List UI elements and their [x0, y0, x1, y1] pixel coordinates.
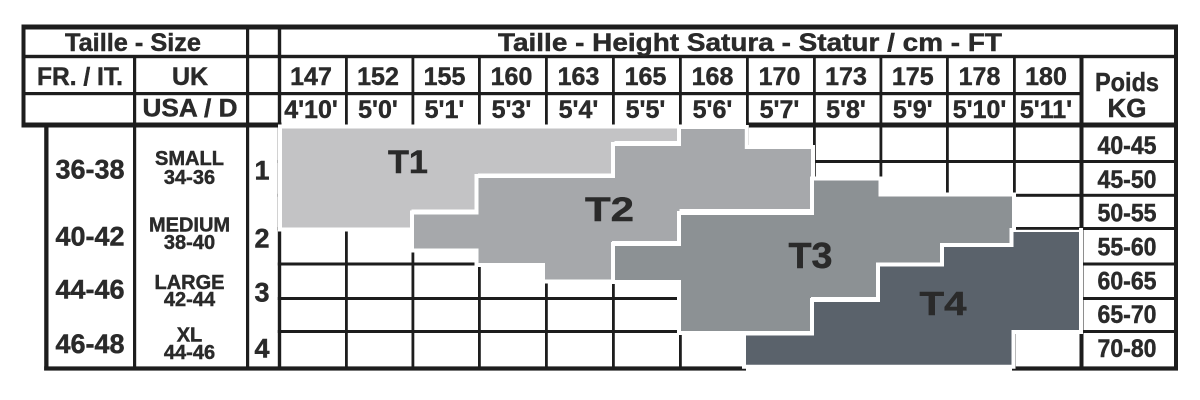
svg-text:5'4': 5'4'	[559, 96, 599, 124]
svg-text:155: 155	[424, 63, 466, 91]
svg-text:KG: KG	[1108, 93, 1147, 123]
svg-text:44-46: 44-46	[164, 342, 215, 364]
svg-text:5'1': 5'1'	[425, 96, 465, 124]
svg-text:55-60: 55-60	[1098, 234, 1157, 262]
svg-text:3: 3	[254, 278, 269, 308]
svg-text:147: 147	[290, 63, 332, 91]
svg-text:T3: T3	[789, 235, 833, 276]
svg-text:Taille - Height Satura - Statu: Taille - Height Satura - Statur / cm - F…	[498, 29, 1002, 57]
svg-text:170: 170	[759, 63, 801, 91]
svg-text:34-36: 34-36	[164, 167, 215, 189]
svg-text:38-40: 38-40	[164, 232, 215, 254]
svg-text:165: 165	[625, 63, 667, 91]
svg-text:1: 1	[254, 156, 269, 186]
svg-text:180: 180	[1025, 63, 1067, 91]
svg-text:168: 168	[692, 63, 734, 91]
svg-text:5'10': 5'10'	[953, 96, 1007, 124]
svg-text:T4: T4	[920, 285, 968, 322]
svg-text:40-45: 40-45	[1098, 132, 1157, 160]
svg-text:Taille - Size: Taille - Size	[65, 29, 201, 57]
svg-text:173: 173	[825, 63, 867, 91]
svg-text:5'7': 5'7'	[760, 96, 800, 124]
svg-text:USA / D: USA / D	[143, 95, 238, 123]
svg-text:175: 175	[892, 63, 934, 91]
svg-text:46-48: 46-48	[55, 329, 124, 359]
svg-text:40-42: 40-42	[55, 222, 124, 252]
svg-text:5'6': 5'6'	[693, 96, 733, 124]
svg-text:5'9': 5'9'	[893, 96, 933, 124]
svg-text:FR. / IT.: FR. / IT.	[37, 63, 123, 91]
svg-text:45-50: 45-50	[1098, 166, 1157, 194]
svg-text:2: 2	[254, 224, 269, 254]
svg-text:70-80: 70-80	[1098, 335, 1157, 363]
svg-text:5'0': 5'0'	[358, 96, 398, 124]
svg-text:65-70: 65-70	[1098, 301, 1157, 329]
svg-text:42-44: 42-44	[164, 289, 216, 311]
svg-text:T2: T2	[585, 191, 634, 229]
svg-text:5'8': 5'8'	[826, 96, 866, 124]
svg-text:4'10': 4'10'	[284, 96, 338, 124]
svg-text:4: 4	[254, 334, 269, 364]
svg-text:UK: UK	[172, 63, 208, 91]
svg-text:50-55: 50-55	[1098, 200, 1157, 228]
svg-text:5'5': 5'5'	[626, 96, 666, 124]
svg-text:44-46: 44-46	[55, 275, 124, 305]
svg-text:152: 152	[357, 63, 399, 91]
svg-text:36-38: 36-38	[55, 155, 124, 185]
svg-text:163: 163	[558, 63, 600, 91]
svg-text:60-65: 60-65	[1098, 268, 1157, 296]
svg-text:160: 160	[491, 63, 533, 91]
svg-text:5'3': 5'3'	[492, 96, 532, 124]
svg-text:178: 178	[959, 63, 1001, 91]
svg-text:5'11': 5'11'	[1020, 96, 1072, 124]
svg-text:T1: T1	[388, 144, 428, 180]
